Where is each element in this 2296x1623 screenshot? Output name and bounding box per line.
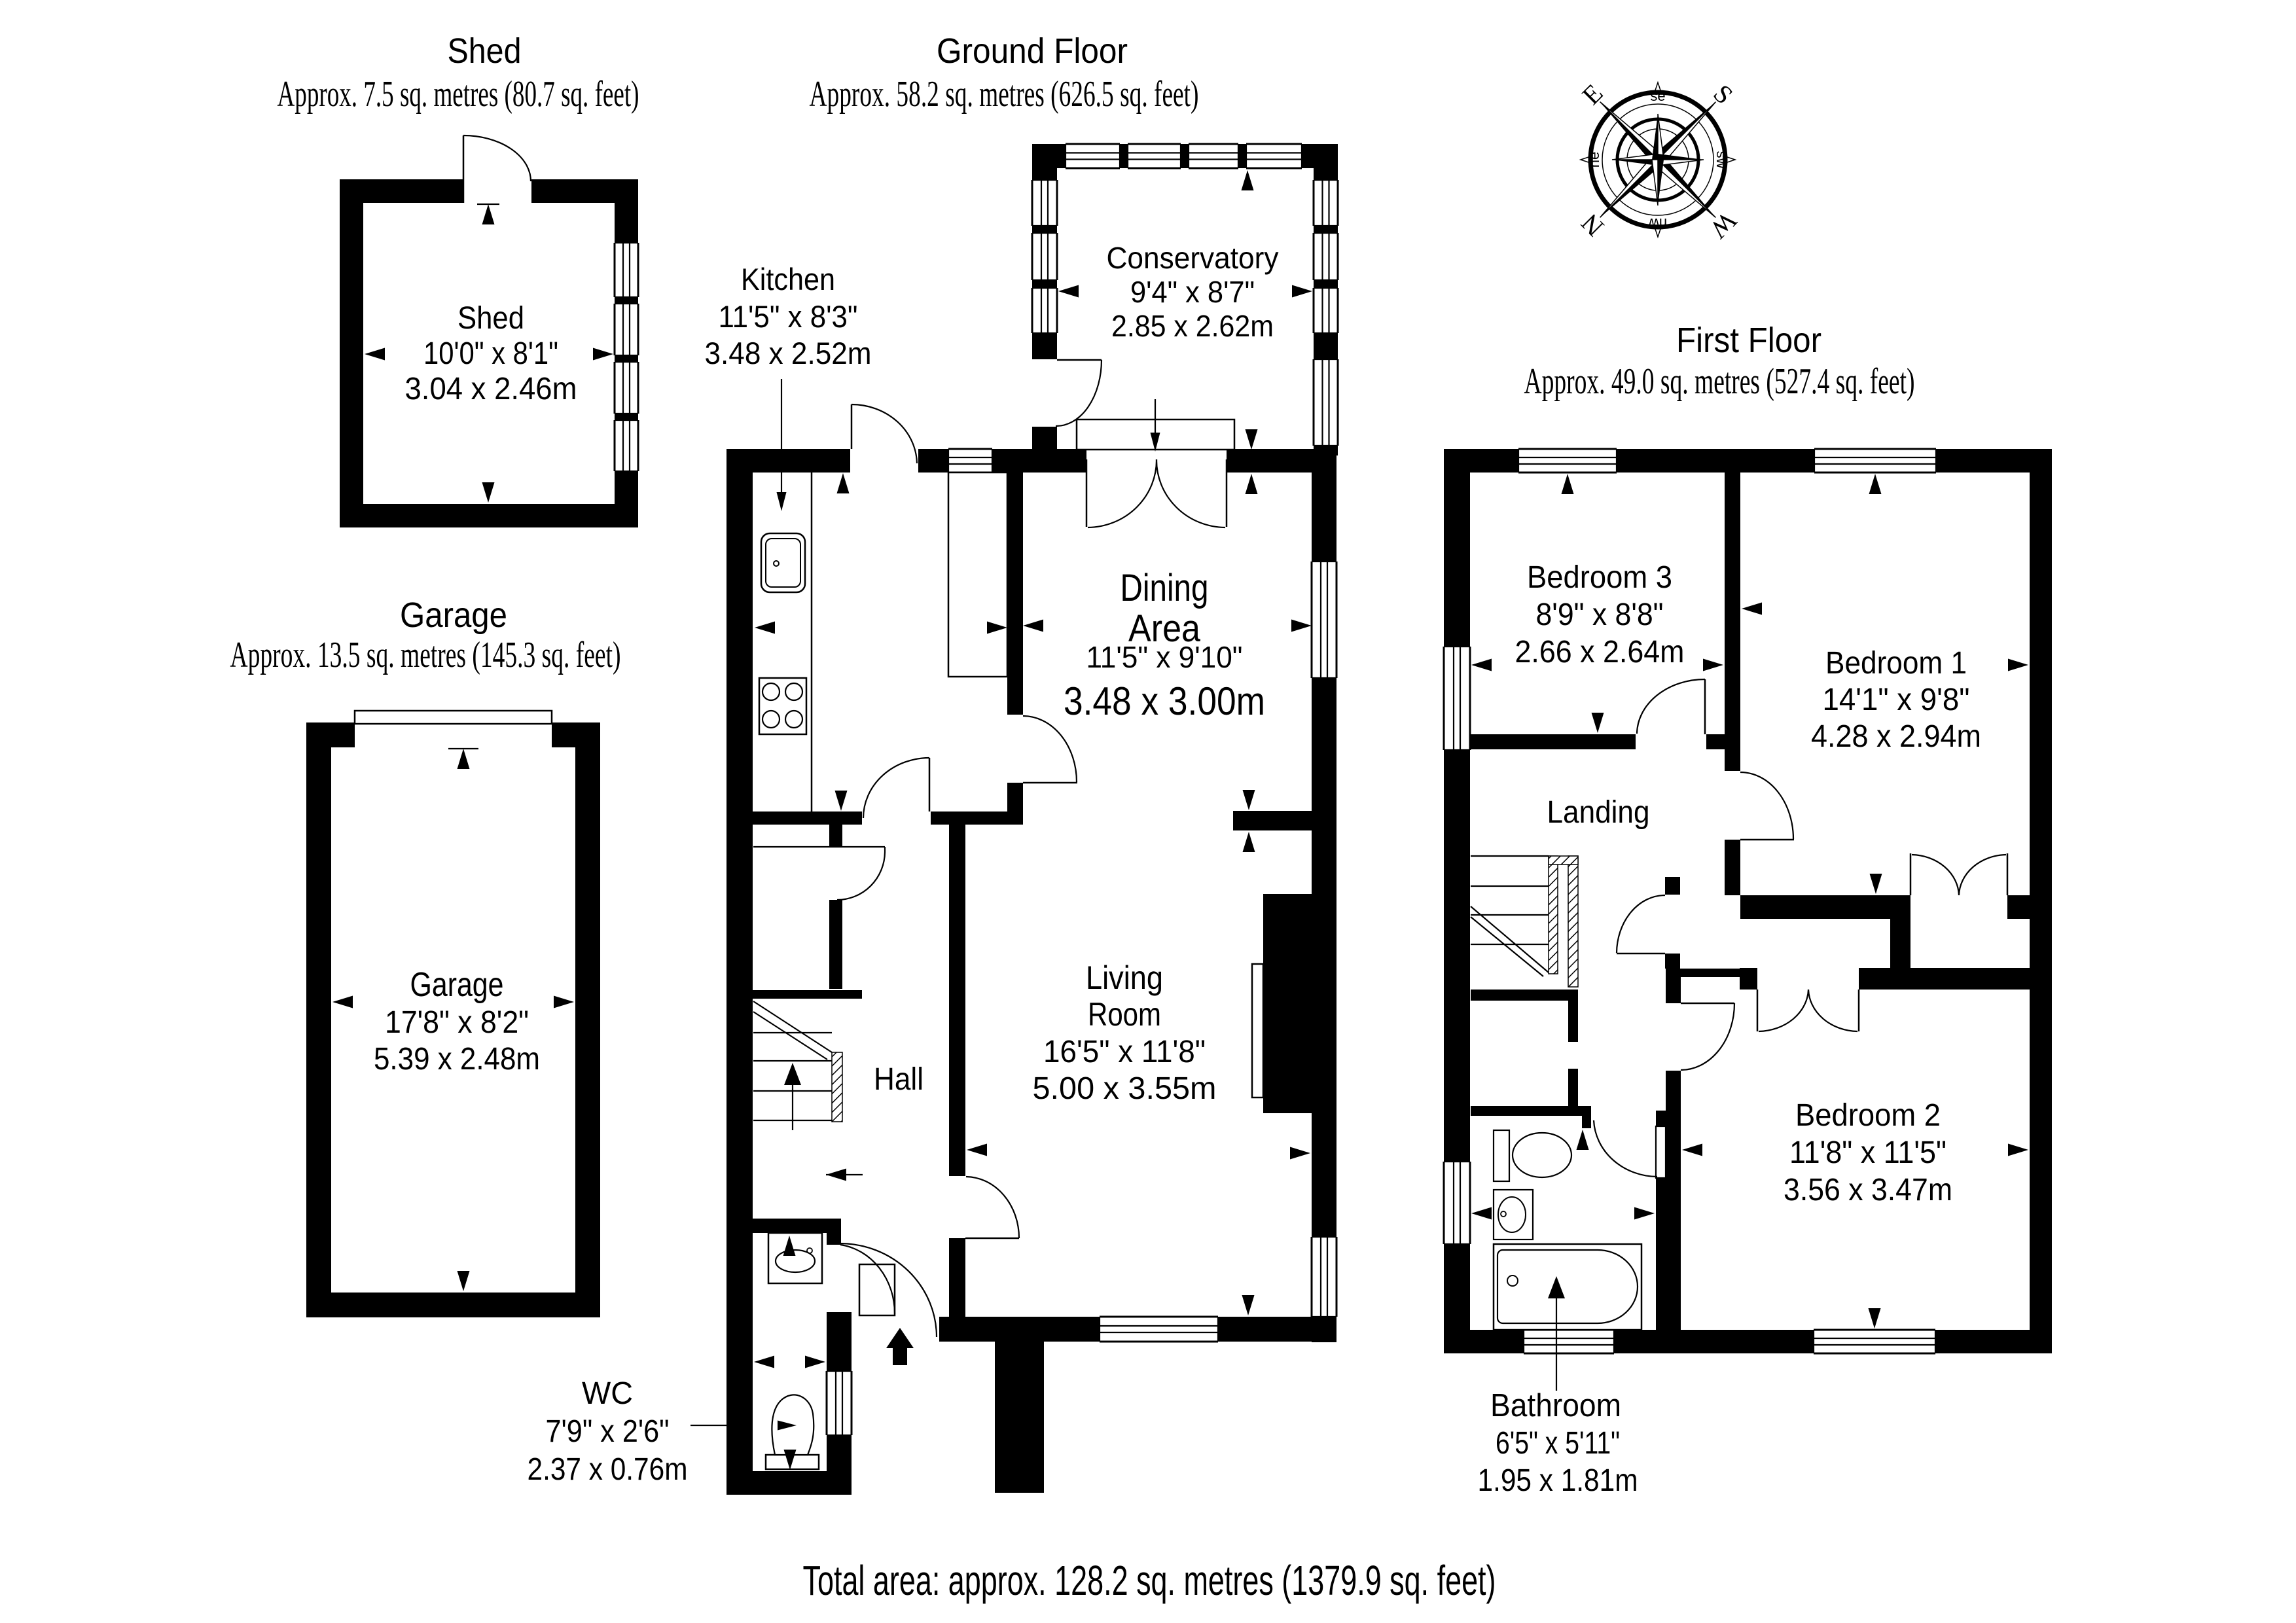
svg-text:14'1" x 9'8": 14'1" x 9'8" xyxy=(1823,683,1970,717)
svg-text:17'8" x 8'2": 17'8" x 8'2" xyxy=(385,1005,529,1040)
svg-text:Kitchen: Kitchen xyxy=(741,262,835,296)
svg-text:nw: nw xyxy=(1649,215,1667,232)
svg-text:WC: WC xyxy=(582,1376,633,1411)
svg-text:9'4" x 8'7": 9'4" x 8'7" xyxy=(1130,275,1255,309)
svg-text:7'9" x 2'6": 7'9" x 2'6" xyxy=(546,1414,670,1449)
svg-text:Landing: Landing xyxy=(1547,795,1650,830)
svg-text:Shed: Shed xyxy=(448,31,522,71)
svg-text:5.00 x 3.55m: 5.00 x 3.55m xyxy=(1033,1071,1217,1106)
svg-text:Hall: Hall xyxy=(874,1062,924,1097)
svg-text:Approx. 49.0 sq. metres (527.4: Approx. 49.0 sq. metres (527.4 sq. feet) xyxy=(1524,361,1915,402)
svg-text:2.37 x 0.76m: 2.37 x 0.76m xyxy=(528,1452,688,1487)
svg-text:2.66 x 2.64m: 2.66 x 2.64m xyxy=(1515,635,1685,669)
svg-text:Total area: approx. 128.2 sq.: Total area: approx. 128.2 sq. metres (13… xyxy=(803,1557,1496,1604)
svg-text:Approx. 13.5 sq. metres (145.3: Approx. 13.5 sq. metres (145.3 sq. feet) xyxy=(230,635,621,675)
svg-text:Shed: Shed xyxy=(457,301,524,336)
svg-text:sw: sw xyxy=(1713,151,1730,169)
svg-text:Bedroom 1: Bedroom 1 xyxy=(1825,646,1967,681)
svg-text:6'5" x 5'11": 6'5" x 5'11" xyxy=(1496,1426,1620,1461)
svg-text:10'0" x 8'1": 10'0" x 8'1" xyxy=(423,336,558,371)
svg-text:Garage: Garage xyxy=(400,596,507,635)
svg-text:First Floor: First Floor xyxy=(1676,321,1821,360)
svg-text:16'5" x 11'8": 16'5" x 11'8" xyxy=(1043,1035,1206,1069)
svg-text:2.85 x 2.62m: 2.85 x 2.62m xyxy=(1111,309,1274,343)
svg-text:11'5" x 8'3": 11'5" x 8'3" xyxy=(719,299,858,334)
svg-text:Bathroom: Bathroom xyxy=(1490,1388,1621,1423)
svg-text:5.39 x 2.48m: 5.39 x 2.48m xyxy=(374,1042,540,1077)
svg-text:Bedroom 2: Bedroom 2 xyxy=(1795,1098,1941,1133)
svg-text:1.95 x 1.81m: 1.95 x 1.81m xyxy=(1478,1463,1638,1498)
svg-text:4.28 x 2.94m: 4.28 x 2.94m xyxy=(1811,719,1981,754)
svg-text:11'8" x 11'5": 11'8" x 11'5" xyxy=(1789,1135,1946,1170)
svg-text:Living: Living xyxy=(1086,959,1163,996)
svg-text:3.48 x 2.52m: 3.48 x 2.52m xyxy=(705,336,872,370)
svg-text:Conservatory: Conservatory xyxy=(1107,241,1279,275)
svg-text:Approx. 58.2 sq. metres (626.5: Approx. 58.2 sq. metres (626.5 sq. feet) xyxy=(810,74,1199,115)
svg-text:3.04 x 2.46m: 3.04 x 2.46m xyxy=(405,372,577,406)
svg-text:Room: Room xyxy=(1088,996,1161,1033)
svg-text:se: se xyxy=(1650,88,1665,104)
svg-text:ne: ne xyxy=(1586,152,1602,168)
svg-text:Approx. 7.5 sq. metres (80.7 s: Approx. 7.5 sq. metres (80.7 sq. feet) xyxy=(278,74,639,115)
svg-text:3.48 x 3.00m: 3.48 x 3.00m xyxy=(1064,679,1265,723)
svg-text:11'5" x 9'10": 11'5" x 9'10" xyxy=(1086,640,1243,674)
svg-text:3.56 x 3.47m: 3.56 x 3.47m xyxy=(1784,1173,1952,1207)
svg-text:8'9" x 8'8": 8'9" x 8'8" xyxy=(1536,597,1664,632)
svg-text:Dining: Dining xyxy=(1121,567,1209,609)
svg-text:Garage: Garage xyxy=(410,966,504,1004)
svg-text:Ground Floor: Ground Floor xyxy=(937,31,1128,71)
svg-text:Bedroom 3: Bedroom 3 xyxy=(1527,560,1672,595)
